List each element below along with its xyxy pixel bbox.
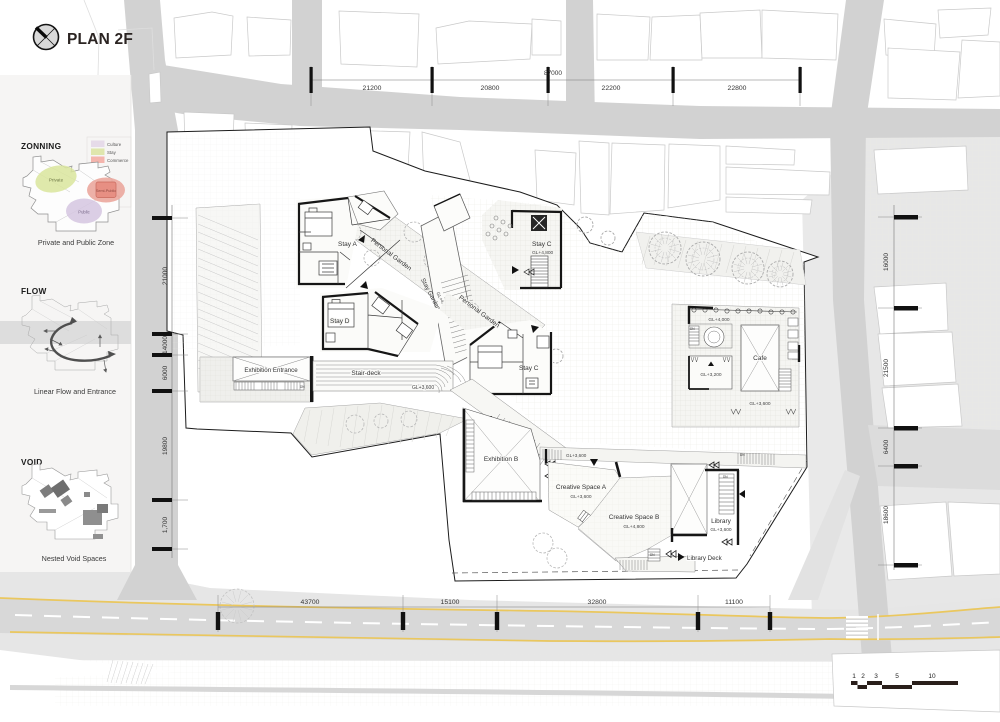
svg-text:6400: 6400: [883, 439, 890, 454]
svg-text:18600: 18600: [883, 506, 890, 524]
svg-text:Library Deck: Library Deck: [687, 555, 723, 562]
svg-text:21500: 21500: [883, 359, 890, 377]
svg-text:GL+3,600: GL+3,600: [710, 527, 732, 533]
svg-text:32800: 32800: [588, 599, 607, 606]
svg-text:DN: DN: [690, 327, 695, 331]
svg-text:15100: 15100: [441, 599, 460, 606]
svg-text:3: 3: [874, 673, 878, 680]
svg-text:Stay C: Stay C: [519, 365, 539, 372]
svg-text:Stay C: Stay C: [532, 241, 552, 248]
svg-text:Private and Public Zone: Private and Public Zone: [38, 238, 114, 247]
svg-text:Public: Public: [78, 210, 89, 215]
svg-text:Commerce: Commerce: [107, 158, 129, 163]
svg-text:Creative Space A: Creative Space A: [556, 484, 607, 491]
svg-text:87000: 87000: [544, 70, 562, 77]
svg-text:Stair-deck: Stair-deck: [351, 370, 381, 377]
svg-text:22800: 22800: [728, 85, 747, 92]
svg-text:GL+3,600: GL+3,600: [570, 494, 592, 500]
svg-text:GL+3,600: GL+3,600: [566, 453, 587, 458]
svg-text:10: 10: [928, 673, 936, 680]
svg-text:19800: 19800: [162, 437, 169, 455]
svg-text:Private: Private: [49, 178, 64, 183]
svg-text:GL+3,600: GL+3,600: [412, 385, 434, 391]
svg-text:Linear Flow and Entrance: Linear Flow and Entrance: [34, 387, 116, 396]
svg-text:DN: DN: [650, 553, 655, 557]
svg-text:GL+4,800: GL+4,800: [623, 524, 645, 530]
svg-text:PLAN 2F: PLAN 2F: [67, 31, 133, 48]
svg-text:21000: 21000: [162, 267, 169, 285]
svg-text:14000: 14000: [162, 336, 169, 354]
svg-text:11100: 11100: [725, 599, 743, 606]
svg-text:Creative Space B: Creative Space B: [609, 514, 660, 521]
svg-text:16000: 16000: [883, 253, 890, 271]
svg-text:ZONNING: ZONNING: [21, 141, 61, 151]
svg-text:Stay D: Stay D: [330, 318, 350, 325]
svg-text:5: 5: [895, 673, 899, 680]
svg-text:20800: 20800: [481, 85, 500, 92]
svg-text:22200: 22200: [602, 85, 621, 92]
svg-text:Stay A: Stay A: [338, 241, 357, 248]
svg-text:DN: DN: [300, 385, 305, 389]
svg-text:Culture: Culture: [107, 142, 122, 147]
svg-text:FLOW: FLOW: [21, 286, 47, 296]
svg-text:Semi-Public: Semi-Public: [96, 189, 116, 193]
svg-text:Exhibition Entrance: Exhibition Entrance: [244, 367, 298, 374]
svg-text:GL+4,000: GL+4,000: [708, 317, 730, 323]
svg-text:GL+4,800: GL+4,800: [532, 250, 554, 256]
svg-text:GL+3,600: GL+3,600: [749, 401, 771, 407]
svg-text:21200: 21200: [363, 85, 382, 92]
svg-text:Exhibition B: Exhibition B: [484, 456, 518, 463]
svg-text:1: 1: [852, 673, 856, 680]
svg-text:GL+3,200: GL+3,200: [700, 372, 722, 378]
svg-text:1,700: 1,700: [162, 516, 169, 533]
svg-text:DN: DN: [723, 475, 728, 479]
svg-text:Cafe: Cafe: [753, 355, 767, 362]
svg-text:Nested Void Spaces: Nested Void Spaces: [42, 554, 107, 563]
svg-text:6000: 6000: [162, 365, 169, 380]
svg-text:Stay: Stay: [107, 150, 117, 155]
svg-text:43700: 43700: [301, 599, 320, 606]
svg-text:DN: DN: [740, 453, 745, 457]
svg-text:2: 2: [861, 673, 865, 680]
svg-text:Library: Library: [711, 518, 732, 525]
